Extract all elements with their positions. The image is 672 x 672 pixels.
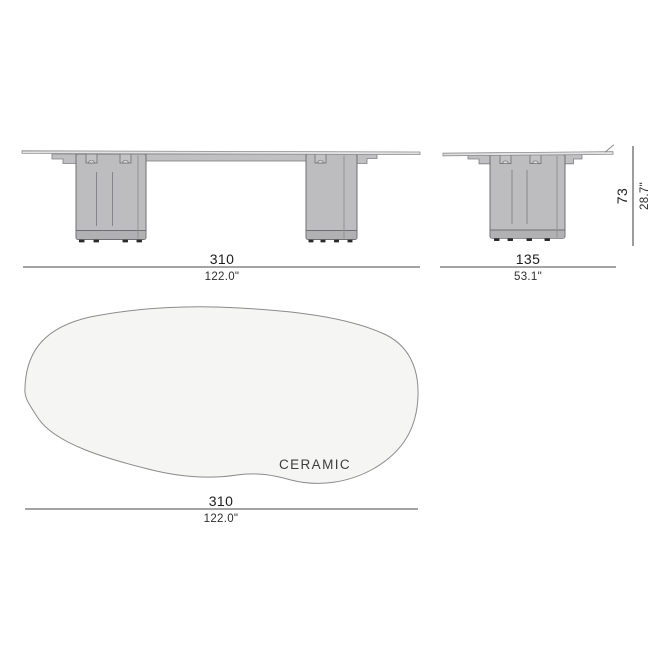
top-width-dimension: 310 122.0" — [25, 493, 418, 525]
side-apron-stub-right — [565, 155, 582, 164]
leg-feet — [494, 238, 550, 241]
front-width-dimension: 310 122.0" — [23, 251, 420, 283]
front-apron-stub-right — [356, 154, 377, 164]
dimension-value-cm: 310 — [209, 493, 234, 509]
height-dimension: 73 28.7" — [614, 146, 651, 246]
front-apron-beam — [146, 154, 306, 161]
technical-drawing-canvas: CERAMIC 310 122.0" 135 53.1" 73 28.7" 31… — [0, 0, 672, 672]
material-label: CERAMIC — [279, 457, 351, 472]
tabletop-outline — [25, 307, 418, 484]
dimension-value-inches: 122.0" — [204, 513, 239, 525]
side-apron-stub-left — [468, 155, 490, 164]
dimension-value-cm: 310 — [210, 251, 235, 267]
dimension-value-cm: 73 — [614, 188, 630, 204]
leg-mount-bracket — [315, 154, 326, 163]
dimension-value-inches: 28.7" — [639, 182, 651, 210]
front-elevation-view — [22, 151, 420, 243]
leg-mount-bracket — [500, 155, 511, 164]
leg-mount-bracket — [86, 154, 97, 163]
front-left-leg — [76, 154, 146, 242]
side-leg — [490, 155, 565, 241]
dimension-value-inches: 122.0" — [205, 271, 240, 283]
dimension-value-cm: 135 — [516, 251, 541, 267]
leg-feet — [79, 240, 142, 243]
side-tabletop-edge — [443, 152, 613, 156]
plan-view: CERAMIC — [25, 307, 418, 484]
leg-feet — [309, 240, 353, 243]
depth-dimension: 135 53.1" — [440, 251, 616, 283]
front-apron-stub-left — [52, 154, 76, 164]
side-elevation-view — [443, 145, 614, 241]
dimension-value-inches: 53.1" — [514, 271, 542, 283]
leg-mount-bracket — [530, 155, 541, 164]
front-right-leg — [306, 154, 357, 242]
side-tabletop-edge-tip — [605, 145, 614, 153]
leg-mount-bracket — [120, 154, 131, 163]
drawing-svg: CERAMIC 310 122.0" 135 53.1" 73 28.7" 31… — [0, 0, 672, 672]
